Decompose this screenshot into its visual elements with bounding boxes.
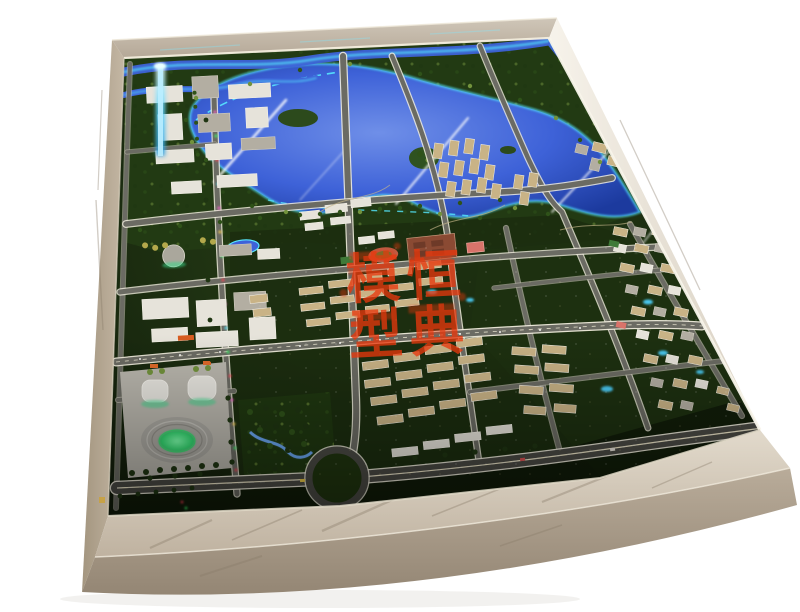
gold-tag [99,497,105,503]
city-model-photo: 模 恒 型 典 [0,0,800,612]
model-surface: 模 恒 型 典 [108,38,765,521]
watermark-char-bottom-left: 型 [347,302,404,368]
watermark-char-bottom-right: 典 [408,299,465,365]
photo-stage: 模 恒 型 典 [0,0,800,612]
